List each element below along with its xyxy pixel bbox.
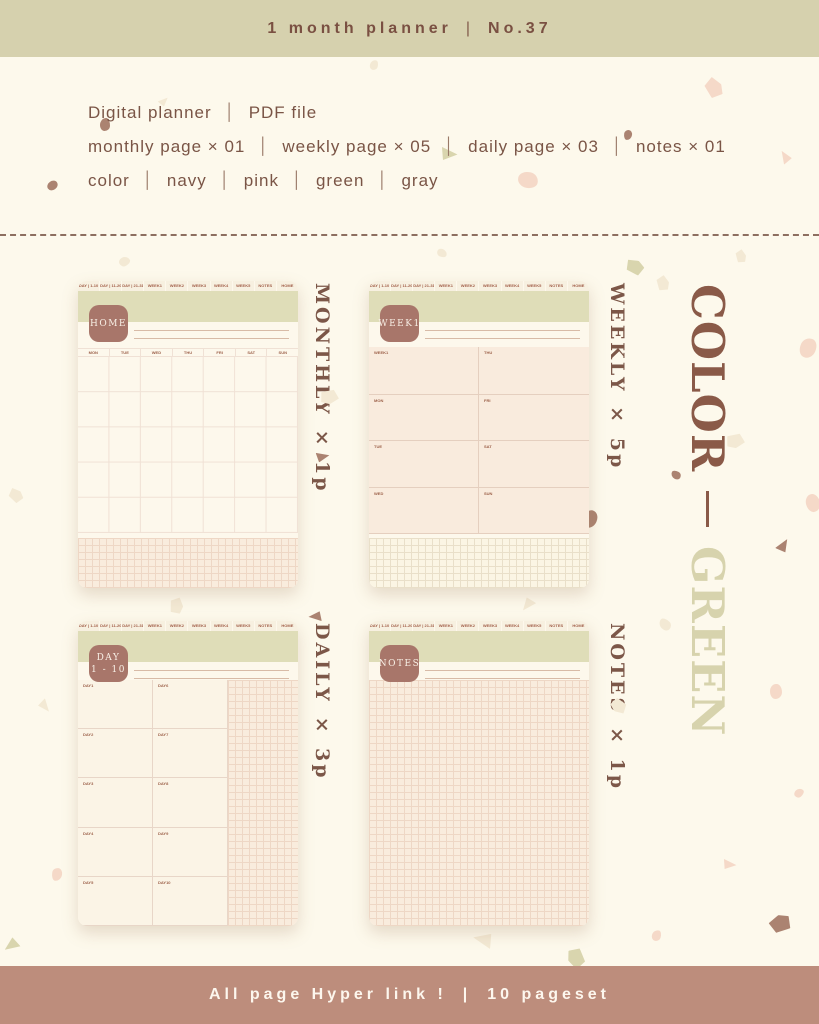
week-layout-grid: WEEK1 MON TUE WED THU FRI SAT SUN — [369, 347, 589, 534]
day-cell: DAY9 — [153, 828, 228, 877]
confetti-shape — [45, 179, 59, 193]
confetti-shape — [770, 684, 782, 699]
page-tab: DAY | 1-10 — [78, 621, 99, 631]
day-cell: DAY5 — [78, 877, 153, 926]
page-tab: WEEK2 — [457, 621, 478, 631]
cell-label: DAY6 — [158, 683, 168, 688]
cell-label: DAY9 — [158, 831, 168, 836]
title-rule — [134, 330, 289, 331]
confetti-shape — [118, 255, 132, 268]
confetti-shape — [797, 336, 819, 361]
color-word: COLOR — [681, 284, 734, 472]
page-tab: DAY | 21-31 — [413, 621, 434, 631]
info-line-pages: monthly page × 01 │ weekly page × 05 │ d… — [88, 130, 726, 164]
color-navy: navy — [167, 171, 207, 191]
cell-label: DAY10 — [158, 880, 171, 885]
confetti-shape — [308, 611, 322, 622]
page-tab: WEEK2 — [166, 621, 187, 631]
page-tab: NOTES — [255, 621, 276, 631]
week-cell: THU — [479, 347, 589, 394]
weekday-header-row: MON TUE WED THU FRI SAT SUN — [78, 348, 298, 357]
divider-bar: │ — [444, 138, 455, 156]
page-tab: WEEK5 — [233, 621, 254, 631]
page-tab: WEEK3 — [188, 281, 209, 291]
daily-count: daily page × 03 — [468, 137, 599, 157]
day-cell: DAY3 — [78, 778, 153, 827]
week-cell: TUE — [369, 440, 479, 487]
confetti-shape — [369, 59, 379, 71]
badge-label: NOTES — [379, 659, 421, 669]
color-word: color — [88, 171, 130, 191]
weekday-label: FRI — [204, 349, 236, 356]
day-cell: DAY1 — [78, 680, 153, 729]
hyperlink-note: All page Hyper link ! — [209, 986, 447, 1004]
weekly-count-label: WEEKLY × 5p — [606, 283, 628, 470]
confetti-shape — [775, 536, 792, 554]
page-tab: DAY | 11-20 — [100, 621, 121, 631]
page-tab-row: DAY | 1-10DAY | 11-20DAY | 21-31WEEK1WEE… — [369, 281, 589, 291]
variant-word: GREEN — [681, 546, 734, 737]
confetti-shape — [519, 596, 536, 614]
product-title: 1 month planner — [267, 20, 451, 38]
home-badge: HOME — [89, 305, 128, 342]
memo-grid-strip — [78, 538, 298, 588]
pageset-count: 10 pageset — [487, 986, 610, 1004]
notes-badge: NOTES — [380, 645, 419, 682]
badge-label: DAY — [97, 653, 121, 663]
confetti-shape — [169, 597, 184, 614]
page-tab: DAY | 21-31 — [413, 281, 434, 291]
notes-page-preview: DAY | 1-10DAY | 11-20DAY | 21-31WEEK1WEE… — [369, 621, 589, 926]
monthly-count: monthly page × 01 — [88, 137, 245, 157]
day-cell: DAY7 — [153, 729, 228, 778]
confetti-shape — [734, 249, 748, 265]
week-cell: WEEK1 — [369, 347, 479, 394]
page-tab: NOTES — [255, 281, 276, 291]
weekday-label: THU — [173, 349, 205, 356]
page-tab: DAY | 11-20 — [391, 621, 412, 631]
confetti-shape — [777, 148, 792, 164]
page-tab: WEEK1 — [435, 621, 456, 631]
week-cell: WED — [369, 487, 479, 534]
notes-count: notes × 01 — [636, 137, 726, 157]
page-tab: WEEK5 — [524, 621, 545, 631]
daily-page-preview: DAY | 1-10DAY | 11-20DAY | 21-31WEEK1WEE… — [78, 621, 298, 926]
page-tab: HOME — [277, 281, 298, 291]
badge-label: HOME — [90, 319, 127, 329]
cell-label: MON — [374, 398, 383, 403]
cell-label: DAY7 — [158, 732, 168, 737]
weekday-label: SAT — [236, 349, 268, 356]
cell-label: DAY3 — [83, 781, 93, 786]
day-cell: DAY6 — [153, 680, 228, 729]
divider-bar: │ — [258, 138, 269, 156]
confetti-shape — [793, 787, 806, 800]
confetti-shape — [657, 616, 673, 632]
page-tab: WEEK4 — [502, 621, 523, 631]
page-tab: NOTES — [546, 621, 567, 631]
daily-count-label: DAILY × 3p — [311, 623, 333, 781]
cell-label: THU — [484, 350, 492, 355]
page-tab: DAY | 1-10 — [369, 621, 390, 631]
divider-bar: │ — [220, 172, 231, 190]
week-cell: MON — [369, 394, 479, 441]
page-tab: NOTES — [546, 281, 567, 291]
confetti-shape — [1, 936, 20, 954]
day-cell: DAY2 — [78, 729, 153, 778]
monthly-count-label: MONTHLY × 1p — [311, 283, 333, 493]
day-range-badge: DAY 1 - 10 — [89, 645, 128, 682]
title-rule — [425, 678, 580, 679]
weekday-label: SUN — [267, 349, 298, 356]
page-tab: WEEK1 — [144, 621, 165, 631]
page-tab: DAY | 1-10 — [78, 281, 99, 291]
cell-label: DAY1 — [83, 683, 93, 688]
page-tab: WEEK1 — [435, 281, 456, 291]
product-number: No.37 — [488, 20, 552, 38]
info-line-colors: color │ navy │ pink │ green │ gray — [88, 164, 726, 198]
info-filetype: PDF file — [249, 103, 317, 123]
divider-bar: │ — [143, 172, 154, 190]
footer-separator: | — [463, 986, 471, 1004]
cell-label: SUN — [484, 491, 492, 496]
confetti-shape — [723, 859, 737, 870]
color-green: green — [316, 171, 364, 191]
title-rule — [425, 670, 580, 671]
confetti-shape — [472, 930, 494, 949]
memo-grid-column — [228, 680, 298, 926]
week-cell: SUN — [479, 487, 589, 534]
page-tab: HOME — [568, 621, 589, 631]
weekday-label: WED — [141, 349, 173, 356]
color-pink: pink — [244, 171, 279, 191]
color-variant-label: COLOR GREEN — [681, 284, 734, 737]
page-tab: WEEK4 — [211, 281, 232, 291]
confetti-shape — [767, 911, 793, 935]
title-rule — [425, 330, 580, 331]
page-tab: HOME — [277, 621, 298, 631]
monthly-page-preview: DAY | 1-10DAY | 11-20DAY | 21-31WEEK1WEE… — [78, 281, 298, 588]
page-tab: DAY | 21-31 — [122, 281, 143, 291]
page-tab: WEEK1 — [144, 281, 165, 291]
cell-label: DAY8 — [158, 781, 168, 786]
page-tab: DAY | 11-20 — [100, 281, 121, 291]
cell-label: FRI — [484, 398, 490, 403]
title-separator: | — [466, 20, 474, 38]
dashed-divider — [0, 234, 819, 236]
page-tab-row: DAY | 1-10DAY | 11-20DAY | 21-31WEEK1WEE… — [369, 621, 589, 631]
confetti-shape — [651, 929, 663, 942]
memo-grid-strip — [369, 538, 589, 588]
weekly-count: weekly page × 05 — [282, 137, 431, 157]
cell-label: DAY2 — [83, 732, 93, 737]
day-cell: DAY8 — [153, 778, 228, 827]
label-divider — [706, 491, 709, 527]
page-tab: WEEK2 — [166, 281, 187, 291]
info-type: Digital planner — [88, 103, 212, 123]
confetti-shape — [51, 867, 63, 881]
divider-bar: │ — [292, 172, 303, 190]
page-tab: WEEK3 — [479, 281, 500, 291]
month-calendar-grid — [78, 357, 298, 533]
planner-product-sheet: 1 month planner | No.37 Digital planner … — [0, 0, 819, 1024]
page-tab: WEEK3 — [479, 621, 500, 631]
cell-label: TUE — [374, 444, 382, 449]
divider-bar: │ — [225, 104, 236, 122]
badge-sublabel: 1 - 10 — [91, 665, 126, 675]
page-tab: DAY | 11-20 — [391, 281, 412, 291]
weekday-label: MON — [78, 349, 110, 356]
confetti-shape — [624, 257, 646, 276]
weekly-page-preview: DAY | 1-10DAY | 11-20DAY | 21-31WEEK1WEE… — [369, 281, 589, 588]
cell-label: WEEK1 — [374, 350, 388, 355]
page-tab-row: DAY | 1-10DAY | 11-20DAY | 21-31WEEK1WEE… — [78, 621, 298, 631]
cell-label: DAY5 — [83, 880, 93, 885]
cell-label: WED — [374, 491, 383, 496]
confetti-shape — [804, 492, 819, 513]
info-line-format: Digital planner │ PDF file — [88, 96, 726, 130]
page-tab: WEEK2 — [457, 281, 478, 291]
cell-label: DAY4 — [83, 831, 93, 836]
page-tab: WEEK5 — [233, 281, 254, 291]
cell-label: SAT — [484, 444, 492, 449]
title-rule — [425, 338, 580, 339]
top-banner: 1 month planner | No.37 — [0, 0, 819, 57]
page-tab: WEEK5 — [524, 281, 545, 291]
divider-bar: │ — [612, 138, 623, 156]
confetti-shape — [655, 274, 672, 292]
confetti-shape — [436, 247, 448, 258]
page-tab: DAY | 1-10 — [369, 281, 390, 291]
day-boxes-grid: DAY1 DAY2 DAY3 DAY4 DAY5 DAY6 DAY7 DAY8 … — [78, 680, 228, 926]
page-tab: WEEK4 — [211, 621, 232, 631]
week-cell: FRI — [479, 394, 589, 441]
badge-label: WEEK1 — [378, 319, 420, 329]
notes-grid-body — [369, 680, 589, 926]
color-gray: gray — [401, 171, 438, 191]
page-tab: HOME — [568, 281, 589, 291]
title-rule — [134, 670, 289, 671]
day-cell: DAY4 — [78, 828, 153, 877]
week1-badge: WEEK1 — [380, 305, 419, 342]
bottom-banner: All page Hyper link ! | 10 pageset — [0, 966, 819, 1024]
day-cell: DAY10 — [153, 877, 228, 926]
title-rule — [134, 338, 289, 339]
product-info: Digital planner │ PDF file monthly page … — [88, 96, 726, 198]
page-tab-row: DAY | 1-10DAY | 11-20DAY | 21-31WEEK1WEE… — [78, 281, 298, 291]
title-rule — [134, 678, 289, 679]
confetti-shape — [6, 486, 25, 505]
divider-bar: │ — [377, 172, 388, 190]
weekday-label: TUE — [110, 349, 142, 356]
page-tab: WEEK3 — [188, 621, 209, 631]
week-cell: SAT — [479, 440, 589, 487]
page-tab: DAY | 21-31 — [122, 621, 143, 631]
page-tab: WEEK4 — [502, 281, 523, 291]
confetti-shape — [37, 698, 53, 714]
